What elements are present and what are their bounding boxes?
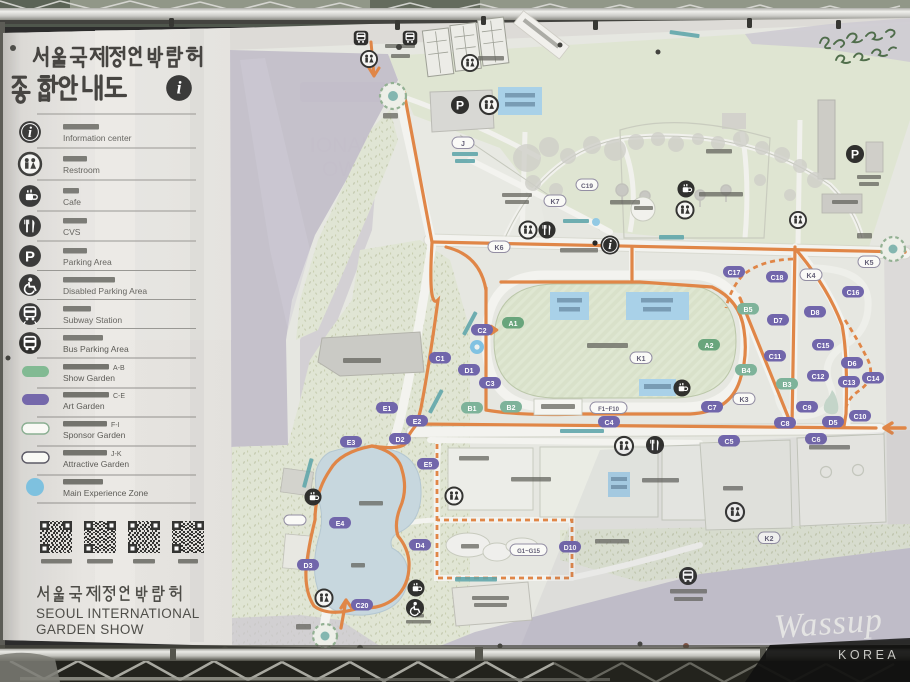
svg-text:KOREA: KOREA: [838, 648, 899, 662]
